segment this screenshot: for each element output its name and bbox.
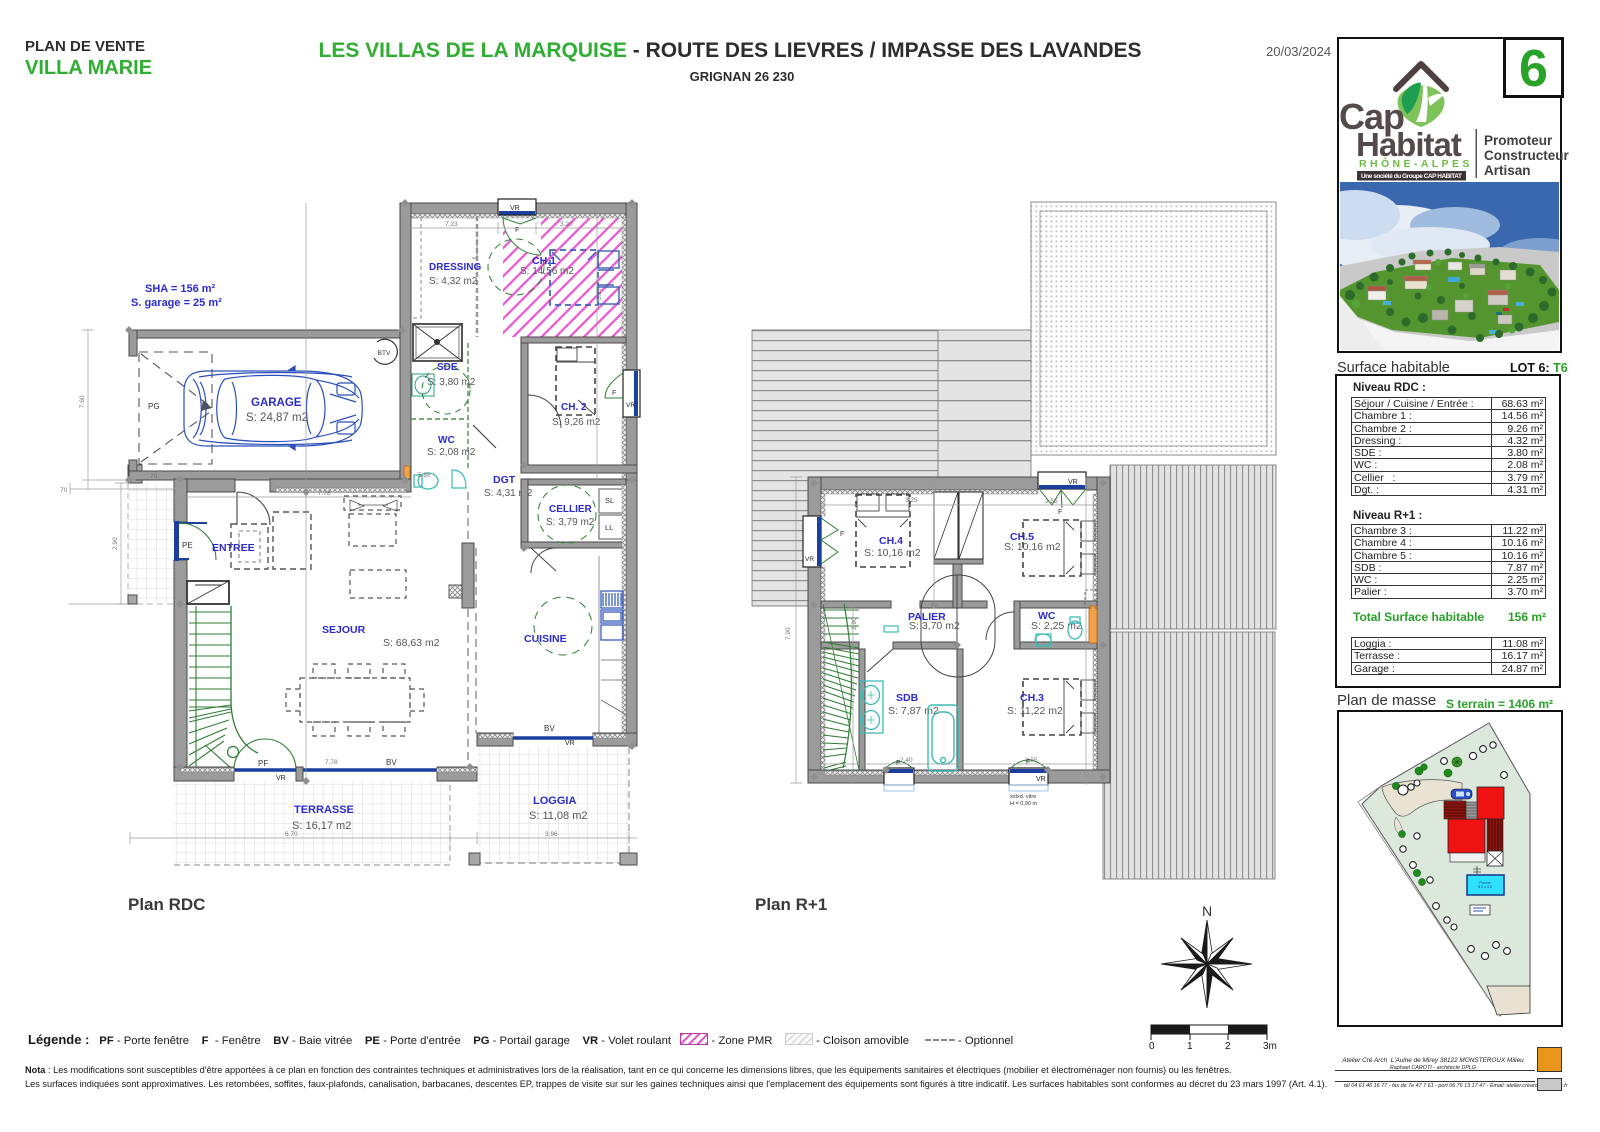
svg-text:7.23: 7.23 <box>445 221 458 228</box>
svg-text:xxtxd. vitre: xxtxd. vitre <box>1010 794 1036 800</box>
svg-text:LL: LL <box>605 523 613 532</box>
svg-text:2.40: 2.40 <box>900 757 913 764</box>
svg-text:S: 16,17 m2: S: 16,17 m2 <box>292 820 351 832</box>
svg-text:1: 1 <box>1187 1041 1193 1052</box>
svg-text:F: F <box>840 531 844 538</box>
svg-text:S. garage = 25 m²: S. garage = 25 m² <box>131 297 222 309</box>
svg-text:F: F <box>1058 509 1062 516</box>
svg-text:3.55: 3.55 <box>1045 498 1058 505</box>
svg-text:VR: VR <box>510 205 520 212</box>
svg-text:TERRASSE: TERRASSE <box>294 804 354 816</box>
svg-text:7.90: 7.90 <box>785 627 792 640</box>
svg-text:3.20: 3.20 <box>560 221 573 228</box>
svg-text:PE: PE <box>182 541 193 550</box>
svg-text:S: 4,32 m2: S: 4,32 m2 <box>429 276 478 287</box>
svg-text:DRESSING: DRESSING <box>429 262 481 273</box>
svg-text:CELLIER: CELLIER <box>549 504 593 515</box>
svg-text:2: 2 <box>1225 1041 1231 1052</box>
svg-text:S: 3,79 m2: S: 3,79 m2 <box>546 517 595 528</box>
svg-text:GARAGE: GARAGE <box>251 397 302 409</box>
svg-text:6.70: 6.70 <box>285 831 298 838</box>
svg-text:CH.4: CH.4 <box>879 535 903 547</box>
svg-text:S: 14,56 m2: S: 14,56 m2 <box>520 266 574 277</box>
svg-text:3.55: 3.55 <box>1025 757 1038 764</box>
svg-text:VR: VR <box>1036 776 1046 783</box>
svg-text:S: 10,16 m2: S: 10,16 m2 <box>1004 541 1061 553</box>
svg-text:S: 9,26 m2: S: 9,26 m2 <box>552 417 601 428</box>
svg-text:ENTREE: ENTREE <box>212 542 255 554</box>
svg-text:LOGGIA: LOGGIA <box>533 795 576 807</box>
svg-text:VR: VR <box>805 556 814 563</box>
svg-text:S: 11,22 m2: S: 11,22 m2 <box>1007 705 1063 717</box>
svg-text:0: 0 <box>1149 1041 1155 1052</box>
svg-text:S: 11,08 m2: S: 11,08 m2 <box>529 810 588 822</box>
svg-text:PG: PG <box>148 402 160 411</box>
svg-text:S: 10,16 m2: S: 10,16 m2 <box>864 547 921 559</box>
svg-text:3.96: 3.96 <box>545 831 558 838</box>
svg-text:SDB: SDB <box>896 692 919 704</box>
svg-text:BV: BV <box>544 724 555 733</box>
svg-text:70: 70 <box>150 473 158 480</box>
svg-text:VR: VR <box>276 775 286 782</box>
svg-text:H = 0,90 m: H = 0,90 m <box>1010 801 1037 807</box>
svg-text:SEJOUR: SEJOUR <box>322 624 366 636</box>
svg-text:S: 2,25 m2: S: 2,25 m2 <box>1031 620 1082 632</box>
svg-text:VR: VR <box>565 740 575 747</box>
svg-text:BV: BV <box>386 758 397 767</box>
svg-text:PF: PF <box>258 759 268 768</box>
svg-text:BTV: BTV <box>378 350 391 357</box>
svg-text:SL: SL <box>605 496 614 505</box>
svg-text:7.60: 7.60 <box>79 395 86 408</box>
svg-text:N: N <box>1202 903 1212 919</box>
svg-text:VR: VR <box>626 402 635 409</box>
svg-text:SHA = 156 m²: SHA = 156 m² <box>145 283 216 295</box>
svg-text:S: 3,70 m2: S: 3,70 m2 <box>909 620 960 632</box>
svg-text:WC: WC <box>438 435 455 446</box>
svg-text:CH.3: CH.3 <box>1020 692 1044 704</box>
svg-text:CUISINE: CUISINE <box>524 633 567 645</box>
svg-text:S: 24,87 m2: S: 24,87 m2 <box>246 412 308 424</box>
svg-text:3.25: 3.25 <box>905 497 918 504</box>
svg-text:5.86: 5.86 <box>418 472 431 479</box>
svg-text:DGT: DGT <box>493 474 516 486</box>
svg-text:3.27: 3.27 <box>596 287 603 300</box>
svg-text:VR: VR <box>1068 479 1078 486</box>
svg-text:2.90: 2.90 <box>851 617 858 630</box>
svg-text:F: F <box>612 390 616 397</box>
svg-text:S: 2,08 m2: S: 2,08 m2 <box>427 447 476 458</box>
svg-text:CH. 2: CH. 2 <box>561 402 587 413</box>
svg-text:3m: 3m <box>1263 1041 1277 1052</box>
svg-text:70: 70 <box>60 487 68 494</box>
svg-text:2.90: 2.90 <box>112 537 119 550</box>
svg-text:S: 68,63 m2: S: 68,63 m2 <box>383 637 440 649</box>
svg-text:7.78: 7.78 <box>318 490 331 497</box>
svg-text:S: 7,87 m2: S: 7,87 m2 <box>888 705 939 717</box>
svg-text:7.78: 7.78 <box>325 759 338 766</box>
